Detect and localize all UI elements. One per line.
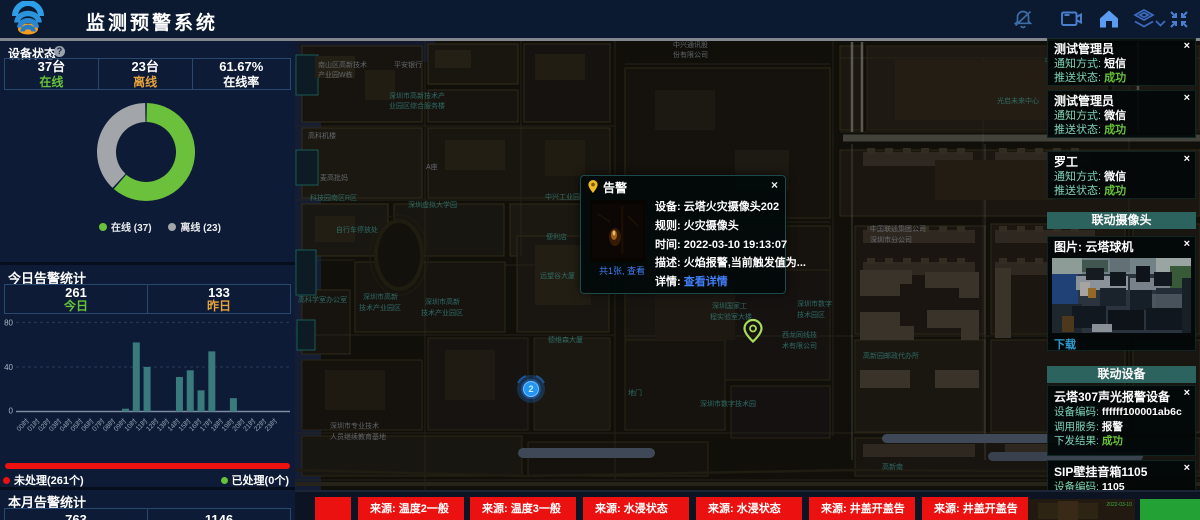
svg-text:深圳市数字技术园: 深圳市数字技术园 (700, 399, 756, 408)
svg-text:平安银行: 平安银行 (394, 60, 422, 69)
svg-text:高新园邮政代办所: 高新园邮政代办所 (863, 351, 919, 360)
svg-text:中兴工业园: 中兴工业园 (545, 192, 580, 201)
svg-text:深圳虚拟大学园: 深圳虚拟大学园 (408, 200, 457, 209)
svg-text:80: 80 (4, 318, 13, 327)
svg-text:便利店: 便利店 (546, 232, 567, 241)
svg-text:地门: 地门 (628, 388, 642, 397)
svg-text:深圳市高新: 深圳市高新 (363, 292, 398, 301)
svg-text:高科学室办公室: 高科学室办公室 (298, 295, 347, 304)
svg-text:科技园南区R区: 科技园南区R区 (310, 193, 357, 202)
svg-text:业园区综合服务楼: 业园区综合服务楼 (389, 101, 445, 110)
svg-text:技术产业园区: 技术产业园区 (359, 303, 401, 312)
svg-text:高科机楼: 高科机楼 (308, 131, 336, 140)
svg-text:产业园W栋: 产业园W栋 (318, 70, 353, 79)
svg-text:高新南: 高新南 (882, 462, 903, 471)
svg-text:A座: A座 (426, 162, 438, 171)
svg-text:远望谷大厦: 远望谷大厦 (540, 271, 575, 280)
svg-text:深圳市分公司: 深圳市分公司 (870, 235, 912, 244)
svg-text:深圳市高新技术产: 深圳市高新技术产 (389, 91, 445, 100)
svg-text:人员继续教育基地: 人员继续教育基地 (330, 432, 386, 441)
svg-text:技术园区: 技术园区 (797, 310, 825, 319)
svg-text:0: 0 (9, 407, 14, 416)
svg-text:深圳市数字: 深圳市数字 (797, 299, 832, 308)
svg-text:中兴通讯股: 中兴通讯股 (673, 40, 708, 49)
svg-text:40: 40 (4, 363, 13, 372)
svg-text:术有限公司: 术有限公司 (782, 341, 817, 350)
svg-text:份有限公司: 份有限公司 (673, 50, 708, 59)
svg-text:西龙同线技: 西龙同线技 (782, 330, 817, 339)
svg-text:南山区高新技术: 南山区高新技术 (318, 60, 367, 69)
svg-text:麦高批妈: 麦高批妈 (320, 173, 348, 182)
svg-text:深圳市专业技术: 深圳市专业技术 (330, 421, 379, 430)
svg-text:深圳市高新: 深圳市高新 (425, 297, 460, 306)
svg-text:深圳国家工: 深圳国家工 (712, 301, 747, 310)
svg-text:光启未来中心: 光启未来中心 (997, 96, 1039, 105)
svg-text:中国联通集团公司: 中国联通集团公司 (870, 224, 926, 233)
svg-text:自行车停放处: 自行车停放处 (336, 225, 378, 234)
svg-text:2022-03-10: 2022-03-10 (1106, 502, 1132, 508)
svg-text:2: 2 (528, 384, 533, 394)
svg-text:程实验室大楼: 程实验室大楼 (710, 312, 752, 321)
svg-text:技术产业园区: 技术产业园区 (421, 308, 463, 317)
svg-text:德维森大厦: 德维森大厦 (548, 335, 583, 344)
